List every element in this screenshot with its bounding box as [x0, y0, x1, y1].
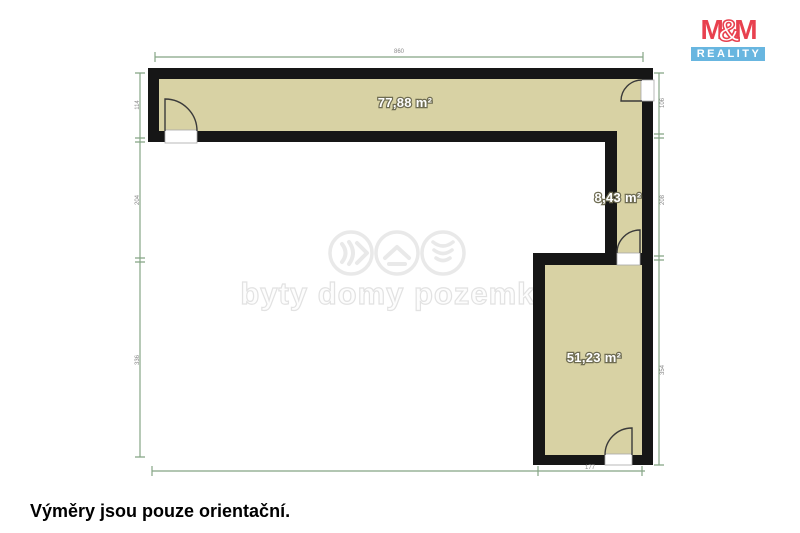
logo-mm-text: M&M	[691, 15, 765, 46]
watermark-icon-house	[385, 247, 409, 264]
floor-plan-page: byty domy pozemky 860 114	[0, 0, 800, 533]
dimension-label-bottom: 177	[585, 465, 596, 471]
door-gap-top-room-right	[641, 80, 654, 101]
watermark-icon-house-circle	[376, 232, 418, 274]
door-gap-top-room-left	[165, 130, 197, 143]
watermark: byty domy pozemky	[240, 232, 553, 311]
watermark-text: byty domy pozemky	[240, 276, 553, 311]
top-room-area-label: 77,88 m²	[378, 95, 433, 110]
dimension-label-right-2: 208	[660, 194, 666, 205]
dimension-label-left-2: 204	[135, 194, 141, 205]
dimension-label-right-1: 106	[660, 97, 666, 108]
watermark-icon-arrows	[342, 242, 367, 264]
dimension-label-right-3: 354	[660, 364, 666, 375]
dimension-line-right	[654, 73, 664, 465]
dimension-label-left-3: 336	[135, 354, 141, 365]
corridor-area-label: 8,43 m²	[595, 190, 642, 205]
logo-ampersand: &	[718, 13, 738, 48]
floor-plan: byty domy pozemky 860 114	[0, 0, 800, 533]
dimension-line-left	[135, 73, 145, 457]
door-gap-corridor	[617, 253, 640, 265]
dimension-label-left-1: 114	[135, 100, 141, 110]
logo-reality-text: REALITY	[691, 47, 765, 61]
watermark-icon-layers	[433, 242, 453, 261]
mm-reality-logo: M&M REALITY	[691, 15, 765, 61]
dimension-line-bottom	[152, 466, 645, 476]
door-gap-bottom-room	[605, 454, 632, 465]
bottom-room-area-label: 51,23 m²	[567, 350, 622, 365]
dimension-label-top: 860	[394, 49, 405, 55]
disclaimer-caption: Výměry jsou pouze orientační.	[30, 501, 290, 522]
